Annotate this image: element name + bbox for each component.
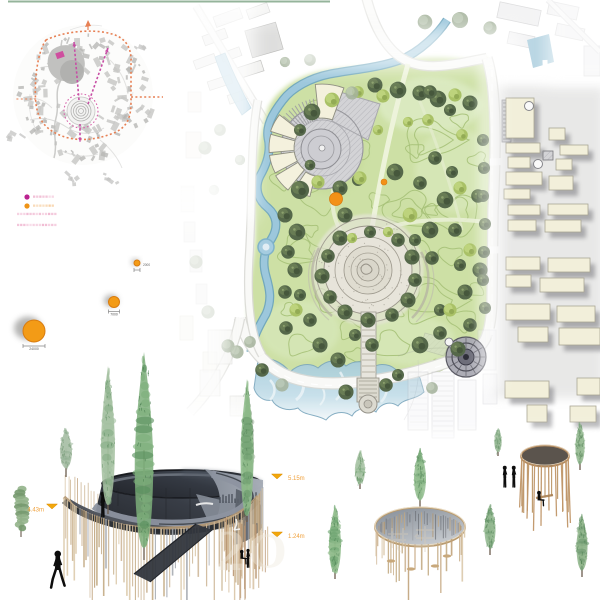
svg-text:1.24m: 1.24m (288, 534, 305, 540)
svg-text:7000: 7000 (110, 313, 118, 317)
svg-text:O: O (248, 522, 287, 578)
svg-text:5.15m: 5.15m (288, 476, 305, 482)
svg-text:24000: 24000 (29, 347, 39, 351)
svg-text:2000: 2000 (143, 263, 150, 267)
svg-text:2: 2 (216, 518, 245, 583)
svg-text:4.43m: 4.43m (27, 508, 44, 514)
